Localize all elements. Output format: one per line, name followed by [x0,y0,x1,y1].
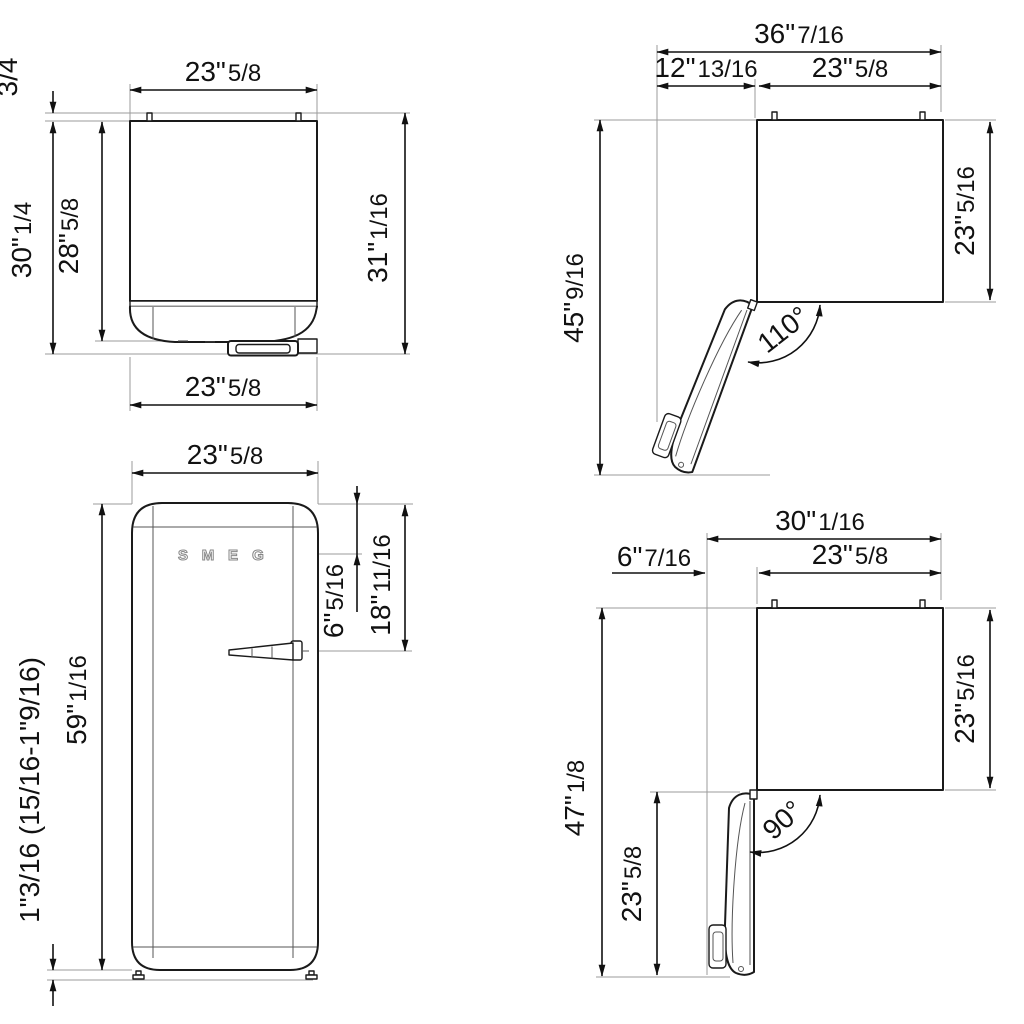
dim-label: 30"1/4 [6,202,37,278]
hinge-pin-right [920,600,925,608]
hinge-pin-right [920,112,925,120]
dim-label: 6"7/16 [617,541,691,572]
dim-label: 30"1/16 [775,505,865,536]
dim-label: 23"5/8 [616,846,647,922]
dim-label: 23"5/8 [812,52,888,83]
dimension-drawing: 23"5/8 3/4 30"1/4 28"5/8 31"1/16 23"5/8 [0,0,1024,1024]
cabinet-top-outline [757,120,943,302]
spec-sheet: 23"5/8 3/4 30"1/4 28"5/8 31"1/16 23"5/8 [0,0,1024,1024]
dim-label: 23"5/8 [812,539,888,570]
back-base-outline [130,307,317,343]
dim-label: 23"5/8 [185,371,261,402]
hinge-pin-right [296,113,301,121]
dim-110-door-projection: 12"13/16 [654,52,757,86]
dim-label: 31"1/16 [362,193,393,283]
dim-label: 18"11/16 [365,534,396,635]
logo-letter-g: G [252,547,264,564]
logo-letter-m: M [202,547,215,564]
dim-label: 47"1/8 [559,760,590,836]
dim-label: 3/4 [0,58,23,97]
dim-label: 36"7/16 [754,18,844,49]
dim-label: 23"5/8 [185,56,261,87]
back-base-right-piece [298,339,317,353]
dim-label: 23"5/16 [949,654,980,744]
dim-label: 23"5/16 [949,166,980,256]
dim-label: 59"1/16 [61,655,92,745]
hinge-pin-left [772,112,777,120]
dim-label: 23"5/8 [187,439,263,470]
dim-label: 1"3/16 (15/16-1"9/16) [14,657,45,923]
cabinet-top-outline [757,608,943,790]
logo-letter-s: S [178,547,188,564]
hinge-pin-left [772,600,777,608]
back-cabinet-outline [130,121,317,301]
dim-label: 12"13/16 [654,52,757,83]
front-door-outline [132,503,318,970]
logo-letter-e: E [228,547,238,564]
dim-label: 28"5/8 [53,198,84,274]
dim-label: 45"9/16 [558,253,589,343]
dim-label: 6"5/16 [318,564,349,638]
back-band [130,301,317,307]
dim-90-door-projection: 6"7/16 [612,541,705,573]
hinge-pin-left [147,113,152,121]
